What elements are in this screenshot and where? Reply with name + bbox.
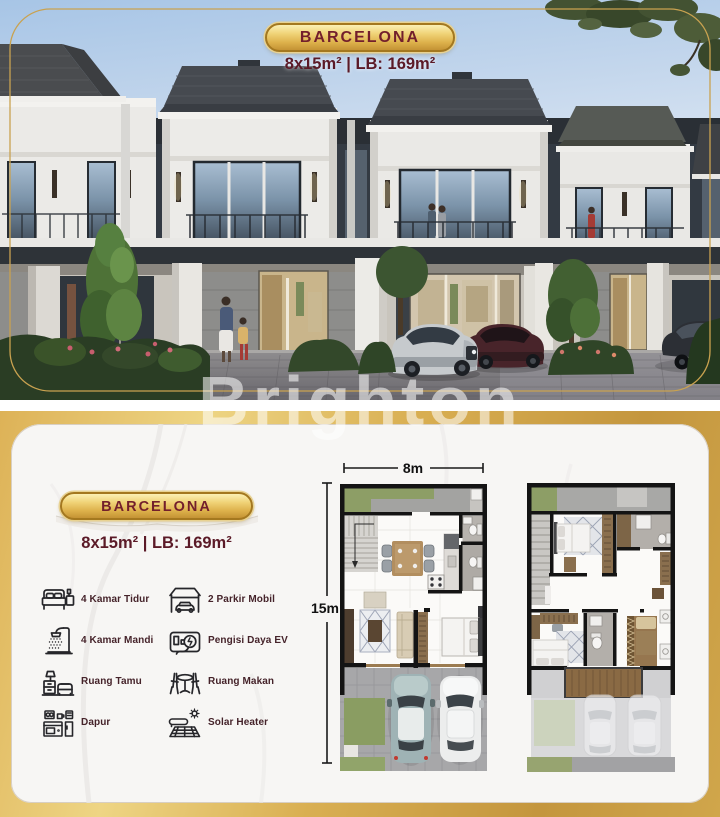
svg-text:15m: 15m — [311, 600, 339, 616]
svg-text:8m: 8m — [403, 460, 423, 476]
